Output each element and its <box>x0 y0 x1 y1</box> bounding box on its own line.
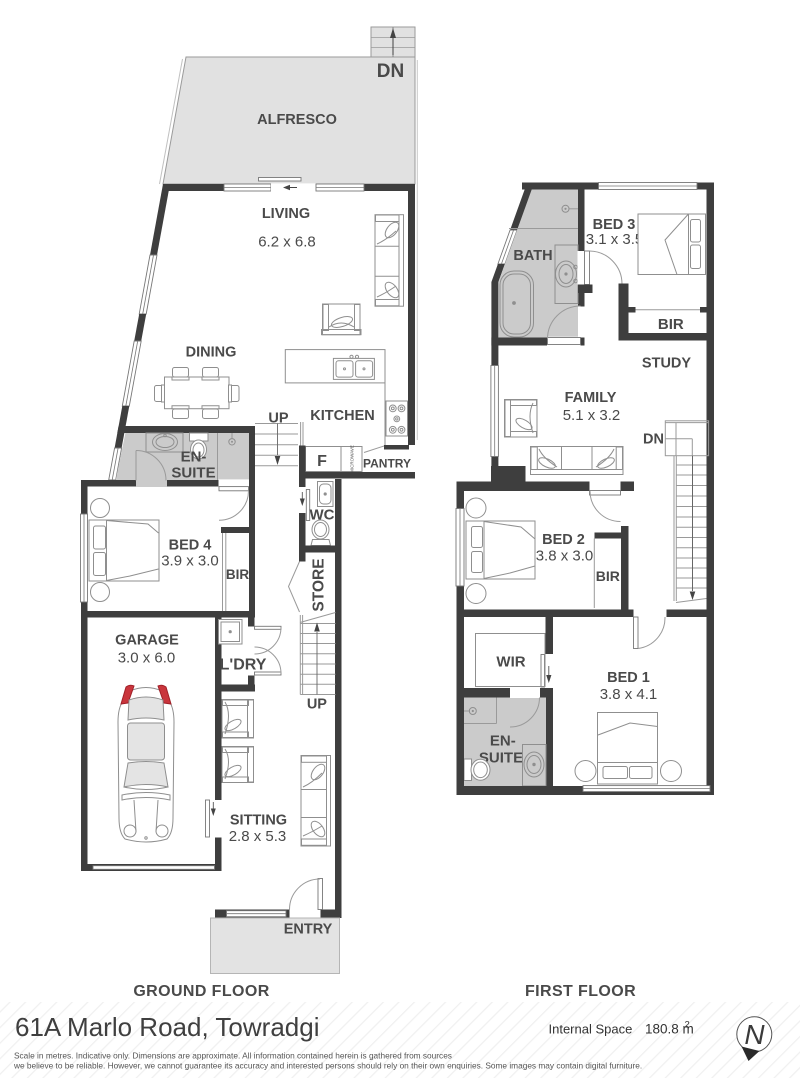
svg-text:KITCHEN: KITCHEN <box>310 408 374 424</box>
svg-text:MICROWAVE: MICROWAVE <box>350 445 355 473</box>
svg-text:BATH: BATH <box>513 248 552 264</box>
svg-text:UP: UP <box>307 697 327 713</box>
svg-text:EN-: EN- <box>181 449 207 466</box>
svg-text:BIR: BIR <box>596 568 620 584</box>
svg-text:SITTING: SITTING <box>230 813 287 829</box>
svg-text:61A Marlo Road, Towradgi: 61A Marlo Road, Towradgi <box>15 1012 319 1042</box>
svg-text:F: F <box>317 453 327 470</box>
svg-text:BED 4: BED 4 <box>169 538 212 554</box>
svg-text:BIR: BIR <box>658 316 684 333</box>
svg-text:FIRST FLOOR: FIRST FLOOR <box>525 983 636 1000</box>
svg-text:STORE: STORE <box>311 558 328 611</box>
svg-text:GARAGE: GARAGE <box>115 633 179 649</box>
svg-text:3.8 x 4.1: 3.8 x 4.1 <box>600 686 658 703</box>
svg-text:2.8 x 5.3: 2.8 x 5.3 <box>229 828 287 845</box>
svg-text:PANTRY: PANTRY <box>363 457 411 471</box>
svg-text:STUDY: STUDY <box>642 356 691 372</box>
svg-text:ENTRY: ENTRY <box>284 922 333 938</box>
svg-text:3.8 x 3.0: 3.8 x 3.0 <box>536 548 594 565</box>
svg-text:Internal Space: Internal Space <box>549 1022 633 1037</box>
svg-text:3.1 x 3.5: 3.1 x 3.5 <box>586 231 644 248</box>
svg-text:2: 2 <box>685 1020 690 1031</box>
svg-text:DINING: DINING <box>186 345 237 361</box>
svg-text:UP: UP <box>268 411 288 427</box>
svg-text:LIVING: LIVING <box>262 206 310 222</box>
svg-text:we believe to be reliable. How: we believe to be reliable. However, we c… <box>13 1061 642 1071</box>
svg-text:ALFRESCO: ALFRESCO <box>257 112 337 128</box>
svg-text:L'DRY: L'DRY <box>220 657 267 674</box>
svg-text:3.0 x 6.0: 3.0 x 6.0 <box>118 650 176 667</box>
svg-text:5.1 x 3.2: 5.1 x 3.2 <box>563 407 621 424</box>
svg-text:GROUND FLOOR: GROUND FLOOR <box>133 983 269 1000</box>
svg-text:BIR: BIR <box>226 567 250 582</box>
svg-text:6.2 x 6.8: 6.2 x 6.8 <box>258 234 316 251</box>
svg-text:EN-: EN- <box>490 733 516 750</box>
svg-text:BED 1: BED 1 <box>607 670 650 686</box>
svg-text:DN: DN <box>643 432 664 448</box>
svg-text:FAMILY: FAMILY <box>565 390 617 406</box>
svg-text:BED 2: BED 2 <box>542 532 585 548</box>
svg-text:3.9 x 3.0: 3.9 x 3.0 <box>161 553 219 570</box>
svg-text:N: N <box>744 1019 765 1050</box>
svg-text:WIR: WIR <box>496 654 525 671</box>
svg-text:Scale in metres. Indicative on: Scale in metres. Indicative only. Dimens… <box>14 1051 452 1061</box>
svg-text:SUITE: SUITE <box>171 465 215 482</box>
svg-text:DN: DN <box>377 61 404 82</box>
